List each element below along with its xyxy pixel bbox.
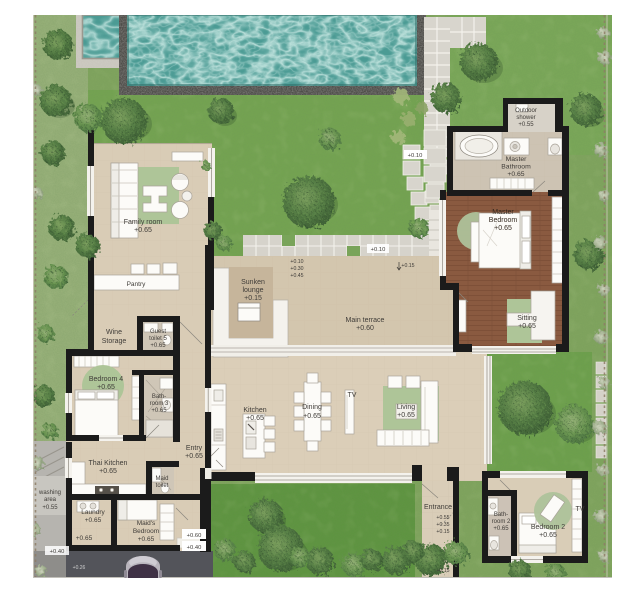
svg-text:Maid's: Maid's <box>137 520 156 527</box>
svg-text:+0.26: +0.26 <box>73 565 86 571</box>
svg-text:+0.60: +0.60 <box>187 533 202 539</box>
svg-text:+0.60: +0.60 <box>356 325 374 332</box>
svg-text:Kitchen: Kitchen <box>243 407 266 414</box>
svg-text:toilet 5: toilet 5 <box>149 336 167 342</box>
svg-text:+0.65: +0.65 <box>246 415 264 422</box>
svg-text:+0.65: +0.65 <box>185 453 203 460</box>
svg-text:+0.55: +0.55 <box>518 122 534 128</box>
svg-text:Entrance: Entrance <box>424 504 452 511</box>
svg-text:+0.65: +0.65 <box>150 343 166 349</box>
svg-text:+0.10: +0.10 <box>371 247 386 253</box>
svg-text:+0.45: +0.45 <box>290 273 303 279</box>
svg-text:Bedroom: Bedroom <box>133 528 159 535</box>
svg-text:Pantry: Pantry <box>127 281 147 288</box>
svg-text:+0.65: +0.65 <box>494 225 512 232</box>
svg-text:+0.65: +0.65 <box>303 413 321 420</box>
svg-text:+0.55: +0.55 <box>42 505 58 511</box>
svg-text:+0.65: +0.65 <box>99 468 117 475</box>
svg-text:Wine: Wine <box>106 329 122 336</box>
svg-text:+0.30: +0.30 <box>290 266 303 272</box>
svg-text:+0.65: +0.65 <box>85 517 102 524</box>
svg-text:TV: TV <box>576 506 585 513</box>
svg-text:Bath-: Bath- <box>494 512 508 518</box>
svg-text:Main terrace: Main terrace <box>346 317 385 324</box>
svg-text:Master: Master <box>506 156 528 163</box>
svg-text:+0.65: +0.65 <box>138 536 155 543</box>
svg-text:+0.65: +0.65 <box>493 526 509 532</box>
svg-text:Bath-: Bath- <box>152 394 166 400</box>
svg-text:Sitting: Sitting <box>517 315 537 322</box>
svg-text:+0.15: +0.15 <box>244 295 262 302</box>
svg-text:+0.65: +0.65 <box>134 227 152 234</box>
svg-text:Dining: Dining <box>302 404 322 411</box>
svg-text:Guest: Guest <box>150 329 166 335</box>
svg-text:+0.15: +0.15 <box>436 529 449 535</box>
svg-text:shower: shower <box>516 115 535 121</box>
svg-text:Storage: Storage <box>102 338 127 345</box>
svg-text:+0.65: +0.65 <box>76 535 93 542</box>
svg-text:+0.65: +0.65 <box>518 323 536 330</box>
svg-text:+0.15: +0.15 <box>401 263 414 269</box>
svg-text:Family room: Family room <box>124 219 163 226</box>
svg-text:+0.35: +0.35 <box>436 522 449 528</box>
svg-text:+0.65: +0.65 <box>539 532 557 539</box>
svg-text:TV: TV <box>348 392 357 399</box>
svg-text:Bedroom 4: Bedroom 4 <box>89 376 123 383</box>
svg-text:room 2: room 2 <box>492 519 511 525</box>
svg-text:area: area <box>44 497 57 503</box>
svg-text:Sunken: Sunken <box>241 279 265 286</box>
svg-text:+0.15: +0.15 <box>436 568 449 574</box>
svg-text:Master: Master <box>492 209 514 216</box>
svg-text:+0.10: +0.10 <box>290 259 303 265</box>
svg-text:+0.65: +0.65 <box>507 171 524 178</box>
svg-text:+0.65: +0.65 <box>397 412 415 419</box>
svg-text:+0.10: +0.10 <box>408 153 423 159</box>
svg-text:Thai Kitchen: Thai Kitchen <box>89 460 128 467</box>
svg-text:+0.65: +0.65 <box>151 408 167 414</box>
svg-text:Entry: Entry <box>186 445 203 452</box>
svg-text:Outdoor: Outdoor <box>515 108 537 114</box>
svg-text:+0.65: +0.65 <box>97 384 115 391</box>
svg-text:Laundry: Laundry <box>81 509 105 516</box>
svg-text:toilet: toilet <box>156 483 169 489</box>
svg-text:Maid: Maid <box>155 476 168 482</box>
svg-text:Bedroom: Bedroom <box>489 217 518 224</box>
svg-text:+0.55: +0.55 <box>436 515 449 521</box>
svg-text:washing: washing <box>38 490 61 496</box>
svg-text:room 3: room 3 <box>150 401 169 407</box>
svg-text:lounge: lounge <box>242 287 263 294</box>
svg-text:Bathroom: Bathroom <box>501 164 531 171</box>
svg-text:+0.40: +0.40 <box>50 549 65 555</box>
svg-text:Living: Living <box>397 404 415 411</box>
svg-text:+0.40: +0.40 <box>187 545 202 551</box>
svg-text:Bedroom 2: Bedroom 2 <box>531 524 565 531</box>
